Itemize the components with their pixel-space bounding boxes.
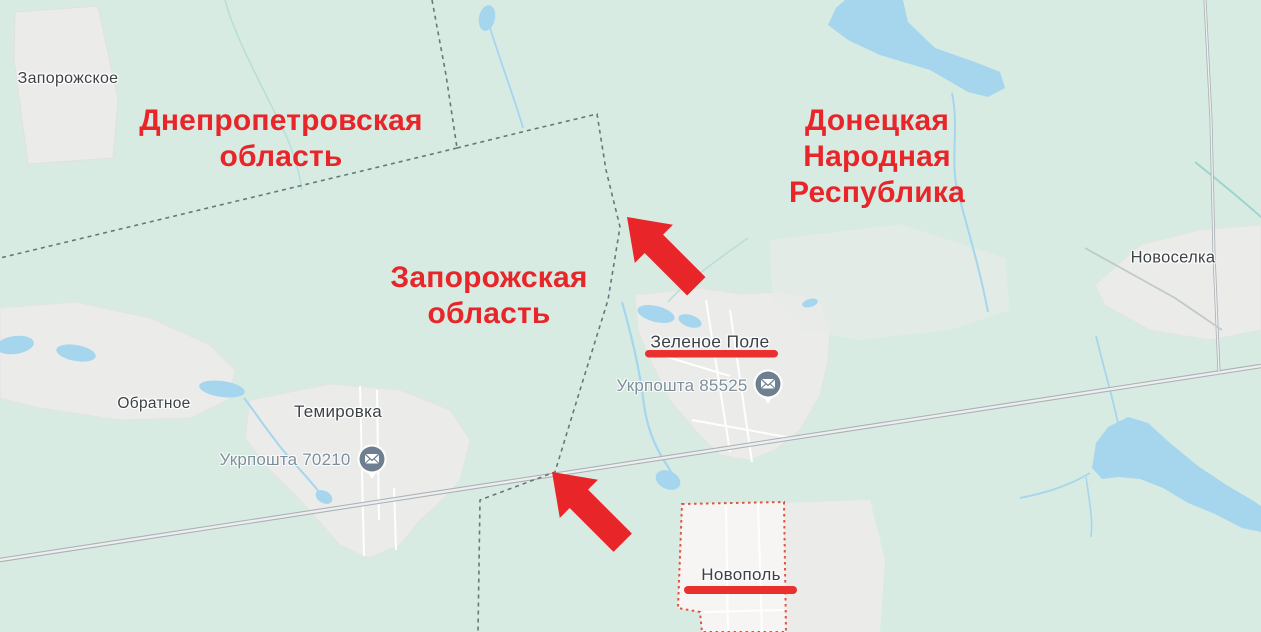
annotation-donetsk-peoples-republic: Донецкая Народная Республика: [789, 103, 965, 211]
town-label-zelenoe-pole[interactable]: Зеленое Поле: [650, 332, 769, 353]
poi-label-ukrposhta-70210[interactable]: Укрпошта 70210: [219, 450, 350, 470]
pond-border-north: [476, 4, 497, 33]
envelope-icon: [365, 454, 379, 464]
stream-border-north: [490, 28, 523, 128]
annotation-dnipropetrovsk-oblast: Днепропетровская область: [139, 103, 422, 175]
underline-novopol: [684, 586, 797, 594]
admin-border-north: [432, 0, 457, 148]
town-label-novoselka[interactable]: Новоселка: [1131, 249, 1216, 268]
envelope-icon: [761, 379, 775, 389]
town-label-temirovka[interactable]: Темировка: [294, 402, 382, 422]
town-label-zaporozhskoe[interactable]: Запорожское: [18, 70, 119, 88]
stream-into-pond-west: [1020, 473, 1090, 498]
lake-north: [828, 0, 1005, 97]
pond-southeast: [1092, 417, 1261, 532]
town-label-novopol[interactable]: Новополь: [701, 565, 781, 585]
map-canvas[interactable]: Запорожское Обратное Темировка Новоселка…: [0, 0, 1261, 632]
settlement-polygon-novopol-east: [784, 500, 885, 632]
field-polygon-northeast: [770, 224, 1010, 340]
map-layers: [0, 0, 1261, 632]
stream-northeast-corner: [1195, 162, 1261, 218]
stream-into-pond-north: [1096, 336, 1118, 423]
stream-from-pond-south: [1086, 477, 1092, 537]
admin-border-east: [457, 114, 620, 632]
poi-label-ukrposhta-85525[interactable]: Укрпошта 85525: [616, 376, 747, 396]
settlement-polygon-novoselka: [1095, 225, 1261, 340]
pond-near-novopol: [652, 466, 683, 493]
town-label-obratnoe[interactable]: Обратное: [117, 395, 190, 413]
annotation-zaporizhzhia-oblast: Запорожская область: [390, 260, 587, 332]
